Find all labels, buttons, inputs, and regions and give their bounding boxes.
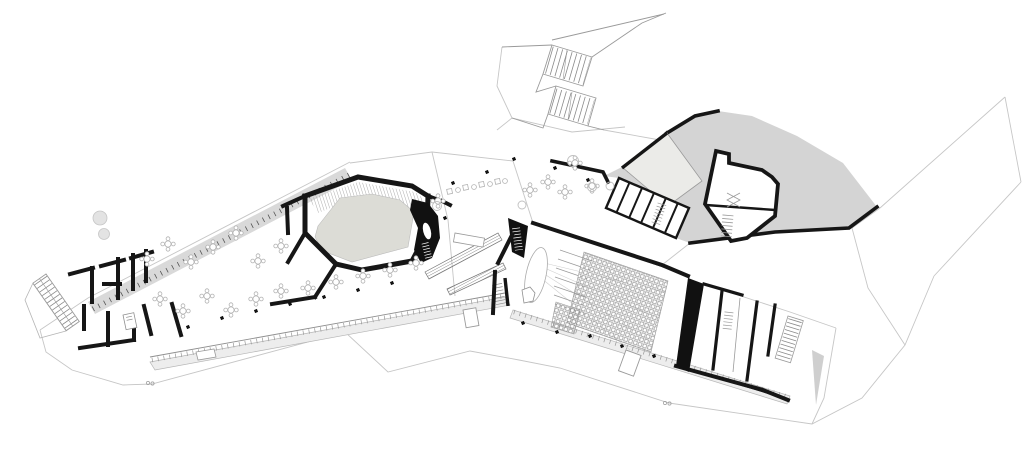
- east-wing-wall-b: [747, 302, 757, 380]
- east-wing-wall-c: [768, 305, 775, 355]
- auditorium-east-poche: [676, 278, 704, 372]
- stair-treads-upper: [549, 60, 587, 71]
- east-wing-partition: [733, 298, 740, 372]
- floor-plan-canvas: [0, 0, 1024, 461]
- ramp-lower: [447, 263, 506, 295]
- east-wing-small-stair: [727, 312, 729, 330]
- auditorium: [493, 223, 788, 400]
- east-gray-triangle: [812, 350, 824, 405]
- terrain-site-lines: [40, 47, 1021, 424]
- entry-vestibule-east: [618, 350, 641, 376]
- central-ramps-stairs: [425, 218, 528, 306]
- piano: [123, 313, 137, 330]
- east-wing-wall-a: [713, 291, 722, 369]
- east-wing: [704, 284, 824, 405]
- entry-vestibule-west: [463, 308, 479, 328]
- west-exterior-stair: [25, 274, 79, 338]
- stair-treads-lower: [553, 101, 591, 112]
- north-exterior-stair: [502, 13, 666, 130]
- tree: [99, 229, 110, 240]
- foyer-facade-line: [150, 293, 505, 357]
- kiosk-row: [447, 178, 508, 194]
- auditorium-west-wall-b: [493, 272, 495, 313]
- plants: [433, 156, 615, 211]
- floor-plan-drawing: [0, 0, 1024, 461]
- auditorium-south-wall: [676, 366, 788, 400]
- tree: [93, 211, 107, 225]
- survey-marks: [146, 381, 671, 405]
- reception-desk: [453, 233, 484, 247]
